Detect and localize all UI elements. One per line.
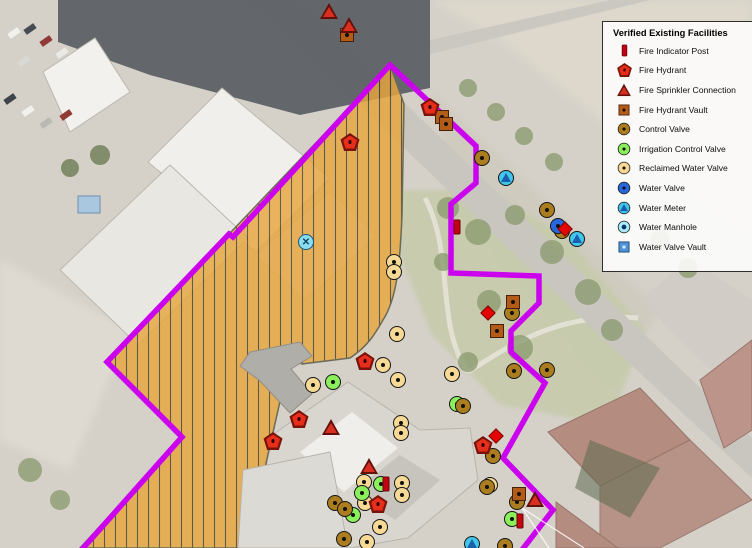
legend-swatch [609,141,639,157]
fire-hydrant-marker[interactable] [356,352,375,370]
reclaimed-water-valve-icon [390,372,406,388]
legend-item-fire-sprinkler-connection: Fire Sprinkler Connection [609,80,752,100]
fire-diamond-marker[interactable] [491,431,502,442]
legend-label: Fire Sprinkler Connection [639,85,736,95]
control-valve-marker[interactable] [506,363,522,379]
legend-item-reclaimed-water-valve: Reclaimed Water Valve [609,159,752,179]
fire-sprinkler-connection-icon [617,84,631,96]
irrigation-control-valve-marker[interactable] [325,374,341,390]
control-valve-marker[interactable] [497,538,513,548]
fire-diamond-marker[interactable] [560,224,571,235]
fire-hydrant-marker[interactable] [290,410,309,428]
legend-swatch [609,200,639,216]
control-valve-marker[interactable] [337,501,353,517]
fire-sprinkler-connection-icon [526,491,544,507]
control-valve-icon [336,531,352,547]
reclaimed-water-valve-icon [389,326,405,342]
water-meter-marker[interactable] [569,231,585,247]
legend-swatch [609,43,639,58]
legend-item-control-valve: Control Valve [609,119,752,139]
water-valve-vault-icon [619,241,630,252]
fire-hydrant-icon [421,98,440,116]
legend-label: Fire Hydrant Vault [639,105,708,115]
water-meter-icon [498,170,514,186]
reclaimed-water-valve-icon [394,487,410,503]
fire-hydrant-vault-icon [512,487,526,501]
legend-label: Water Valve Vault [639,242,706,252]
legend-swatch [609,240,639,254]
legend-item-water-valve: Water Valve [609,178,752,198]
control-valve-marker[interactable] [479,479,495,495]
fire-hydrant-icon [356,352,375,370]
fire-hydrant-icon [341,133,360,151]
fire-indicator-post-marker[interactable] [383,477,390,492]
legend-label: Reclaimed Water Valve [639,163,728,173]
reclaimed-water-valve-marker[interactable] [372,519,388,535]
water-valve-icon [618,182,630,194]
fire-indicator-post-marker[interactable] [454,220,461,235]
fire-diamond-marker[interactable] [483,308,494,319]
fire-hydrant-icon [290,410,309,428]
reclaimed-water-valve-icon [618,162,630,174]
legend-panel: Verified Existing Facilities Fire Indica… [602,21,752,272]
control-valve-icon [479,479,495,495]
control-valve-icon [337,501,353,517]
control-valve-icon [539,362,555,378]
legend-title: Verified Existing Facilities [613,28,752,38]
reclaimed-water-valve-icon [375,357,391,373]
water-meter-marker[interactable] [498,170,514,186]
water-valve-x-icon: ✕ [298,234,314,250]
fire-hydrant-vault-icon [506,295,520,309]
fire-sprinkler-connection-marker[interactable] [340,17,358,33]
reclaimed-water-valve-marker[interactable] [305,377,321,393]
legend-item-fire-hydrant: Fire Hydrant [609,61,752,81]
fire-indicator-post-icon [383,477,390,492]
fire-hydrant-marker[interactable] [369,495,388,513]
fire-sprinkler-connection-icon [322,419,340,435]
reclaimed-water-valve-icon [393,425,409,441]
fire-indicator-post-icon [621,45,626,57]
reclaimed-water-valve-icon [444,366,460,382]
legend-label: Water Meter [639,203,686,213]
legend-item-water-manhole: Water Manhole [609,217,752,237]
legend-item-water-valve-vault: Water Valve Vault [609,237,752,257]
reclaimed-water-valve-icon [305,377,321,393]
control-valve-marker[interactable] [455,398,471,414]
water-manhole-icon [618,221,630,233]
map-viewport[interactable]: ✕ Verified Existing Facilities Fire Indi… [0,0,752,548]
water-valve-x-marker[interactable]: ✕ [298,234,314,250]
reclaimed-water-valve-marker[interactable] [390,372,406,388]
legend-swatch [609,219,639,235]
fire-hydrant-icon [617,63,632,77]
irrigation-control-valve-icon [618,143,630,155]
legend-item-irrigation-control-valve: Irrigation Control Valve [609,139,752,159]
legend-swatch [609,61,639,79]
legend-label: Water Manhole [639,222,697,232]
fire-sprinkler-connection-icon [360,458,378,474]
fire-indicator-post-icon [517,514,524,529]
legend-label: Irrigation Control Valve [639,144,726,154]
control-valve-icon [497,538,513,548]
fire-sprinkler-connection-icon [340,17,358,33]
fire-hydrant-icon [264,432,283,450]
water-meter-marker[interactable] [464,536,480,548]
legend-rows: Fire Indicator PostFire HydrantFire Spri… [609,41,752,257]
legend-swatch [609,180,639,196]
fire-sprinkler-connection-icon [320,3,338,19]
fire-hydrant-vault-icon [439,117,453,131]
fire-diamond-icon [480,305,496,321]
legend-item-fire-indicator-post: Fire Indicator Post [609,41,752,61]
control-valve-icon [618,123,630,135]
control-valve-icon [474,150,490,166]
fire-indicator-post-icon [454,220,461,235]
legend-label: Fire Hydrant [639,65,686,75]
control-valve-marker[interactable] [539,362,555,378]
water-meter-icon [569,231,585,247]
fire-hydrant-vault-marker[interactable] [512,487,526,501]
reclaimed-water-valve-icon [359,534,375,548]
fire-hydrant-vault-marker[interactable] [506,295,520,309]
fire-hydrant-vault-icon [490,324,504,338]
legend-item-fire-hydrant-vault: Fire Hydrant Vault [609,100,752,120]
reclaimed-water-valve-marker[interactable] [389,326,405,342]
control-valve-marker[interactable] [539,202,555,218]
legend-swatch [609,121,639,137]
legend-label: Fire Indicator Post [639,46,709,56]
legend-item-water-meter: Water Meter [609,198,752,218]
water-meter-icon [464,536,480,548]
control-valve-icon [506,363,522,379]
legend-label: Water Valve [639,183,685,193]
reclaimed-water-valve-marker[interactable] [359,534,375,548]
legend-swatch [609,103,639,117]
fire-sprinkler-connection-marker[interactable] [320,3,338,19]
legend-swatch [609,82,639,98]
fire-sprinkler-connection-marker[interactable] [360,458,378,474]
fire-indicator-post-marker[interactable] [517,514,524,529]
reclaimed-water-valve-icon [386,264,402,280]
fire-sprinkler-connection-marker[interactable] [526,491,544,507]
water-meter-icon [618,201,630,213]
reclaimed-water-valve-marker[interactable] [393,425,409,441]
fire-hydrant-vault-marker[interactable] [490,324,504,338]
reclaimed-water-valve-marker[interactable] [386,264,402,280]
fire-diamond-icon [557,221,573,237]
fire-hydrant-icon [369,495,388,513]
irrigation-control-valve-icon [325,374,341,390]
reclaimed-water-valve-marker[interactable] [375,357,391,373]
reclaimed-water-valve-marker[interactable] [444,366,460,382]
fire-hydrant-marker[interactable] [264,432,283,450]
legend-label: Control Valve [639,124,690,134]
blue-shed [78,196,100,213]
fire-hydrant-vault-icon [619,104,630,115]
fire-diamond-icon [488,428,504,444]
reclaimed-water-valve-icon [372,519,388,535]
control-valve-icon [539,202,555,218]
control-valve-marker[interactable] [336,531,352,547]
fire-hydrant-marker[interactable] [421,98,440,116]
reclaimed-water-valve-marker[interactable] [394,487,410,503]
fire-hydrant-vault-marker[interactable] [439,117,453,131]
control-valve-marker[interactable] [474,150,490,166]
legend-swatch [609,160,639,176]
fire-sprinkler-connection-marker[interactable] [322,419,340,435]
control-valve-icon [455,398,471,414]
fire-hydrant-marker[interactable] [341,133,360,151]
